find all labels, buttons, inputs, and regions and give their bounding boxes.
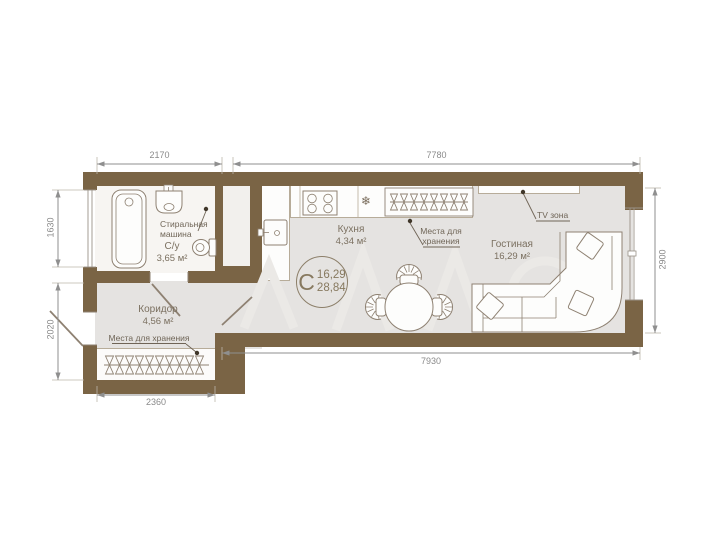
bathroom-name: С/у [147,241,197,252]
kitchen-name: Кухня [301,224,401,235]
kitchen-area: 4,34 м² [301,236,401,247]
corridor-area: 4,56 м² [108,316,208,327]
badge-area-top: 16,29 [317,269,346,282]
living-area: 16,29 м² [461,251,563,262]
corridor-name: Коридор [108,304,208,315]
tv-zone-label: TV зона [537,210,579,220]
corridor-storage-floor [97,348,215,381]
corridor-storage-label: Места для хранения [106,333,192,343]
dim-right-side: 2900 [658,225,669,295]
washing-machine-label: Стиральная машина [160,219,214,239]
wall-bathroom-bottom-a [83,271,150,283]
door-entrance-icon [50,311,97,346]
wall-bottom-main [215,333,643,347]
dim-top-left: 2170 [97,150,222,161]
wall-right-upper [625,172,643,210]
kitchen-storage-label: Места для хранения [416,226,466,246]
fridge-icon: ❄ [358,196,374,207]
dim-left-upper: 1630 [46,193,57,263]
wall-bathroom-bottom-b [188,271,262,283]
shaft-floor [222,186,250,267]
badge-area-bottom: 28,84 [317,282,346,295]
wall-bathroom-right [215,186,223,271]
plan-area-badge: С 16,29 28,84 [296,256,348,308]
dim-top-right: 7780 [233,150,640,161]
floor-plan: 2170 7780 1630 2020 2900 7930 2360 С/у 3… [0,0,720,540]
dim-bottom-main: 7930 [222,356,640,367]
kitchen-counter-top [290,186,473,218]
wall-shaft-right [250,186,262,271]
kitchen-counter-return [260,186,290,281]
dim-bottom-left: 2360 [97,397,215,408]
wall-shaft-bottom [222,266,250,272]
wall-top [83,172,643,186]
bathroom-area: 3,65 м² [138,253,206,264]
wall-left-upper [83,172,97,190]
badge-letter: С [298,271,315,294]
tv-console [478,186,580,194]
wall-bottom-left [83,380,245,394]
living-name: Гостиная [461,239,563,250]
dim-left-lower: 2020 [46,295,57,365]
